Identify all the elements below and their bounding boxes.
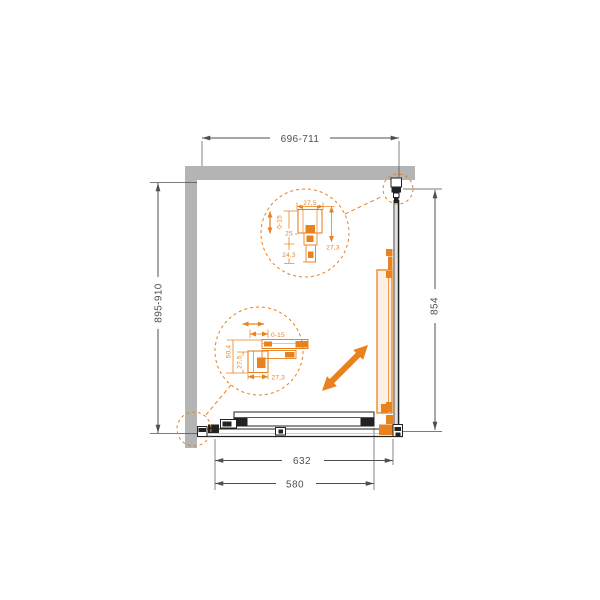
dimension-right-height: 854 bbox=[403, 189, 442, 432]
side-wall bbox=[185, 166, 197, 448]
sliding-door-panel bbox=[234, 412, 374, 435]
detail-top-inset25-label: 25 bbox=[285, 231, 293, 238]
detail-bottom-height-inner-label: 27,5 bbox=[237, 355, 244, 369]
bottom-track bbox=[197, 429, 403, 437]
leader-line-top bbox=[345, 196, 383, 214]
corner-bracket bbox=[393, 425, 403, 437]
door-leaf-open bbox=[377, 249, 393, 413]
wall-profile-bottom bbox=[198, 420, 237, 437]
leader-line-bottom bbox=[205, 385, 231, 416]
dim-label-top-width: 696-711 bbox=[281, 134, 320, 145]
detail-bottom-adjustment-label: 0-15 bbox=[271, 332, 285, 339]
fixed-panel bbox=[394, 200, 399, 429]
detail-top-adjustment-label: 0-15 bbox=[276, 215, 283, 229]
detail-top-depth-label: 27,3 bbox=[326, 245, 340, 252]
dim-label-right-height: 854 bbox=[430, 297, 441, 315]
detail-bottom-width-label: 27,3 bbox=[272, 374, 286, 381]
door-handle bbox=[386, 249, 393, 256]
drawing-canvas: 696-711 895-910 854 632 580 bbox=[0, 0, 600, 600]
profile-section-bottom bbox=[248, 340, 308, 373]
dim-label-rail-width: 632 bbox=[293, 456, 311, 467]
detail-bottom-height-outer-label: 50,4 bbox=[226, 345, 233, 359]
detail-top-inset243-label: 24,3 bbox=[282, 252, 296, 259]
dim-label-glass-width: 580 bbox=[286, 479, 304, 490]
wall-profile-top bbox=[391, 178, 402, 203]
detail-top-width-label: 27,5 bbox=[303, 200, 317, 207]
dim-label-left-height: 895-910 bbox=[153, 283, 164, 323]
profile-section-top bbox=[298, 210, 322, 263]
door-end-profile bbox=[361, 418, 374, 426]
diagonal-slide-arrow-icon bbox=[322, 345, 368, 391]
shower-enclosure-technical-drawing: 696-711 895-910 854 632 580 bbox=[0, 0, 600, 600]
detail-callout-top: 27,5 0-15 25 24,3 27,3 bbox=[261, 189, 349, 277]
top-wall bbox=[185, 166, 415, 180]
detail-callout-bottom: 0-15 50,4 27,5 27,3 bbox=[215, 307, 308, 395]
